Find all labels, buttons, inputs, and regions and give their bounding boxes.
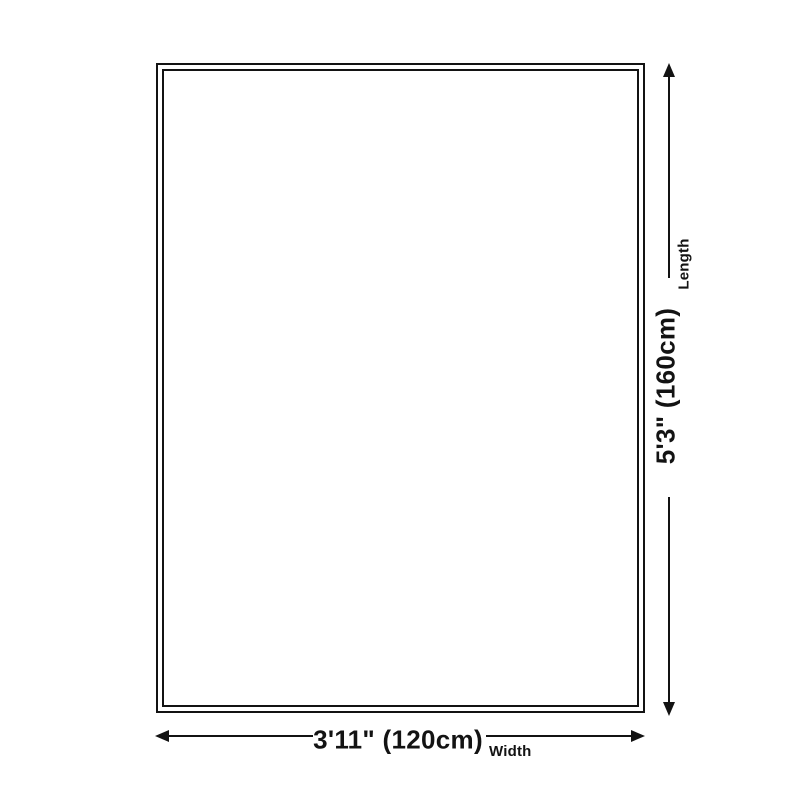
length-line-top-segment bbox=[668, 74, 670, 278]
rug-size-diagram: Length 5'3" (160cm) 3'11" (120cm) Width bbox=[0, 0, 800, 800]
rug-outline bbox=[156, 63, 645, 713]
length-line-bottom-segment bbox=[668, 497, 670, 705]
arrow-down-icon bbox=[663, 702, 675, 716]
length-label: Length bbox=[676, 238, 693, 289]
width-label: Width bbox=[489, 743, 532, 760]
width-line-right-segment bbox=[486, 735, 633, 737]
rug-inner-outline bbox=[162, 69, 639, 707]
length-value: 5'3" (160cm) bbox=[651, 308, 682, 465]
width-line-left-segment bbox=[167, 735, 313, 737]
arrow-right-icon bbox=[631, 730, 645, 742]
width-value: 3'11" (120cm) bbox=[313, 725, 483, 756]
